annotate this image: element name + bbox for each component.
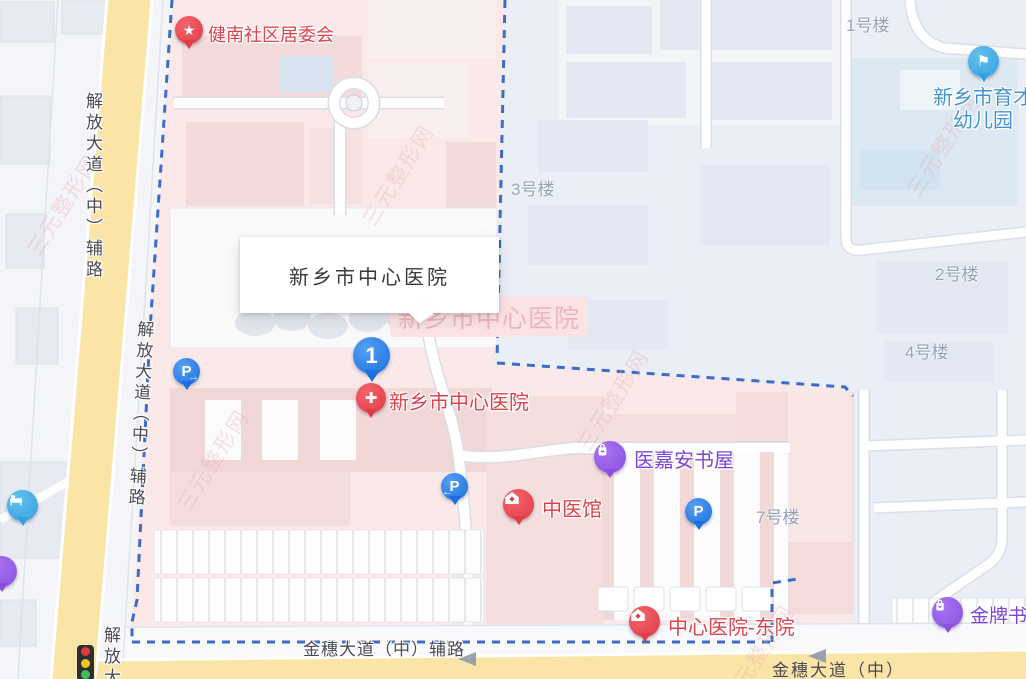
bed-icon	[7, 490, 25, 508]
community-label[interactable]: 健南社区居委会	[208, 21, 334, 47]
flag-icon: ⚑	[977, 54, 990, 69]
selected-result-marker-1[interactable]: 1	[353, 337, 390, 374]
bookstore-pin[interactable]	[594, 441, 626, 473]
building-label-7: 7号楼	[756, 503, 799, 528]
shopping-bag-icon	[594, 441, 611, 458]
bookstore-label[interactable]: 医嘉安书屋	[634, 444, 734, 473]
east-hospital-label[interactable]: 中心医院-东院	[668, 611, 795, 640]
shopping-bag-icon	[932, 597, 948, 613]
building-label-4: 4号楼	[905, 338, 948, 363]
gold-bookstore-pin[interactable]	[932, 597, 963, 628]
east-buildings-layer	[528, 0, 1018, 382]
tcm-clinic-label[interactable]: 中医馆	[542, 493, 602, 522]
kindergarten-label-line2[interactable]: 幼儿园	[953, 104, 1013, 133]
road-label-jinsui-service: 金穗大道（中）辅路	[303, 635, 465, 660]
parking-pin-west[interactable]: P ←	[441, 473, 468, 500]
road-label-jinsui-main: 金穗大道（中）	[772, 656, 905, 679]
hospital-main-label[interactable]: 新乡市中心医院	[389, 386, 529, 415]
community-pin[interactable]: ★	[175, 16, 203, 44]
building-label-1: 1号楼	[846, 11, 889, 36]
hospital-info-box[interactable]: 新乡市中心医院	[240, 237, 499, 313]
gold-bookstore-label[interactable]: 金牌书	[970, 601, 1026, 628]
hospital-cross-icon: ✚	[365, 391, 378, 406]
building-label-2: 2号楼	[935, 260, 978, 285]
arrow-right-icon: →	[188, 372, 199, 383]
map-canvas[interactable]: 三元整形网 三元整形网 三元整形网 三元整形网 三元整形网 三元整形网 解放大道…	[0, 0, 1026, 679]
traffic-light-icon	[77, 645, 94, 679]
parking-pin-north[interactable]: P →	[173, 358, 200, 385]
star-icon: ★	[183, 23, 196, 37]
arrow-left-icon: ←	[442, 487, 453, 498]
parking-icon: P	[693, 503, 703, 520]
parking-pin-south[interactable]: P	[685, 498, 712, 525]
building-label-3: 3号楼	[511, 175, 554, 200]
shopping-bag-icon	[0, 556, 2, 572]
road-label-jiefang-upper: 解放大道（中）辅路	[80, 92, 105, 281]
tcm-clinic-pin[interactable]	[503, 489, 534, 520]
hospital-main-pin[interactable]: ✚	[356, 383, 386, 413]
kindergarten-pin[interactable]: ⚑	[968, 46, 999, 77]
road-label-jiefang-cut: 解放大	[98, 626, 123, 679]
left-edge-poi-pin[interactable]	[7, 490, 38, 521]
east-hospital-pin[interactable]	[629, 606, 660, 637]
clinic-house-icon	[503, 489, 521, 507]
info-box-title: 新乡市中心医院	[289, 261, 450, 290]
marker-number: 1	[365, 343, 377, 369]
clinic-house-icon	[629, 606, 647, 624]
